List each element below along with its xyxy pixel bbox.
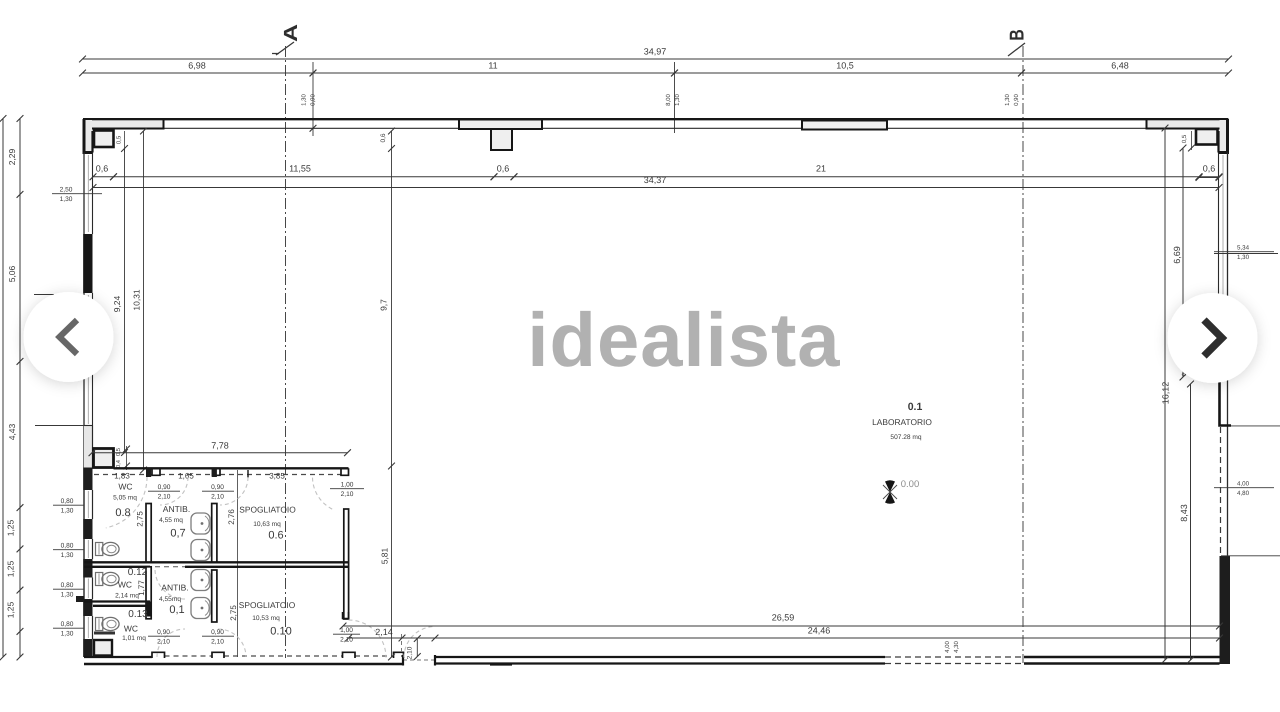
svg-text:1,00: 1,00 (341, 482, 354, 489)
svg-text:WC: WC (118, 580, 132, 590)
svg-text:1,30: 1,30 (60, 196, 73, 203)
svg-text:0,6: 0,6 (380, 133, 387, 142)
svg-text:0.6: 0.6 (268, 530, 283, 542)
svg-text:2,50: 2,50 (60, 187, 73, 194)
svg-text:0.1: 0.1 (908, 401, 923, 413)
svg-text:0.12: 0.12 (128, 567, 148, 578)
svg-text:1,01 mq: 1,01 mq (122, 635, 146, 642)
svg-text:A: A (281, 24, 302, 42)
svg-text:2,10: 2,10 (211, 493, 224, 500)
svg-text:0,4: 0,4 (115, 459, 122, 468)
svg-text:5,06: 5,06 (7, 265, 17, 282)
svg-text:6,48: 6,48 (1111, 61, 1129, 71)
svg-text:4,30: 4,30 (953, 641, 960, 653)
svg-text:2,14 mq: 2,14 mq (115, 593, 139, 600)
svg-text:1,30: 1,30 (301, 94, 308, 106)
svg-text:2,10: 2,10 (211, 638, 224, 645)
svg-text:0,90: 0,90 (158, 484, 171, 491)
svg-text:6,69: 6,69 (1172, 246, 1182, 264)
svg-text:WC: WC (118, 482, 132, 492)
svg-text:1,30: 1,30 (61, 591, 74, 598)
svg-text:2,75: 2,75 (229, 605, 238, 621)
svg-text:2,14: 2,14 (375, 627, 393, 637)
svg-text:21: 21 (816, 164, 826, 174)
svg-text:0,90: 0,90 (310, 94, 317, 106)
svg-text:26,59: 26,59 (772, 613, 795, 623)
svg-text:0,90: 0,90 (211, 629, 224, 636)
svg-text:2,75: 2,75 (136, 511, 145, 527)
svg-text:2,29: 2,29 (7, 148, 17, 165)
svg-text:507.28 mq: 507.28 mq (890, 434, 921, 441)
svg-text:4,00: 4,00 (1237, 481, 1250, 488)
svg-text:11: 11 (488, 61, 497, 71)
svg-text:0.10: 0.10 (270, 626, 291, 638)
svg-text:5,05 mq: 5,05 mq (113, 495, 137, 502)
svg-text:1,77: 1,77 (137, 580, 146, 596)
svg-text:9,7: 9,7 (379, 299, 389, 311)
svg-text:34,97: 34,97 (644, 47, 667, 57)
svg-text:2,10: 2,10 (407, 646, 414, 659)
svg-text:2,10: 2,10 (157, 638, 170, 645)
svg-text:1,30: 1,30 (61, 630, 74, 637)
svg-text:idealista: idealista (527, 298, 840, 383)
svg-text:5,34: 5,34 (1237, 245, 1250, 252)
svg-text:0,80: 0,80 (61, 621, 74, 628)
svg-text:7,78: 7,78 (211, 441, 229, 451)
svg-text:0.8: 0.8 (115, 507, 130, 519)
svg-text:0,5: 0,5 (1181, 134, 1188, 143)
svg-text:4,55 mq: 4,55 mq (159, 517, 183, 524)
svg-text:2,10: 2,10 (341, 491, 354, 498)
svg-text:ANTIB.: ANTIB. (161, 583, 188, 593)
svg-text:1,25: 1,25 (6, 519, 16, 536)
svg-text:0.00: 0.00 (901, 479, 920, 490)
svg-text:1,30: 1,30 (1237, 254, 1250, 261)
svg-text:2,76: 2,76 (227, 509, 236, 525)
svg-text:8,00: 8,00 (665, 94, 672, 106)
svg-text:0,90: 0,90 (157, 629, 170, 636)
svg-text:1,30: 1,30 (674, 94, 681, 106)
svg-text:24,46: 24,46 (808, 626, 831, 636)
svg-text:1,00: 1,00 (340, 627, 353, 634)
svg-text:11,55: 11,55 (289, 164, 311, 174)
svg-text:0,6: 0,6 (96, 164, 109, 174)
svg-text:0.13: 0.13 (128, 609, 148, 620)
svg-text:10,5: 10,5 (836, 61, 854, 71)
svg-text:0,7: 0,7 (170, 528, 185, 540)
svg-text:1,25: 1,25 (6, 560, 16, 577)
svg-text:1,65: 1,65 (178, 472, 194, 481)
svg-text:4,80: 4,80 (1237, 490, 1250, 497)
svg-text:ANTIB.: ANTIB. (163, 504, 190, 514)
svg-text:B: B (1007, 29, 1029, 41)
svg-text:4,55mq: 4,55mq (159, 596, 181, 603)
svg-text:5,81: 5,81 (380, 547, 390, 564)
svg-text:9,24: 9,24 (112, 295, 122, 312)
svg-text:0,5: 0,5 (115, 448, 122, 456)
svg-text:2,10: 2,10 (158, 493, 171, 500)
svg-text:0,90: 0,90 (211, 484, 224, 491)
svg-text:6,98: 6,98 (188, 61, 206, 71)
svg-text:10,53 mq: 10,53 mq (252, 615, 280, 622)
svg-text:SPOGLIATOIO: SPOGLIATOIO (239, 600, 296, 610)
svg-text:10,31: 10,31 (132, 289, 142, 311)
svg-text:0,6: 0,6 (497, 164, 510, 174)
svg-text:0,5: 0,5 (116, 135, 123, 144)
svg-text:0,6: 0,6 (1203, 164, 1216, 174)
svg-text:0,80: 0,80 (61, 498, 74, 505)
svg-text:10,63 mq: 10,63 mq (253, 521, 281, 528)
svg-text:LABORATORIO: LABORATORIO (872, 417, 932, 427)
svg-text:1,83: 1,83 (114, 472, 130, 481)
svg-text:3,85: 3,85 (269, 472, 285, 481)
svg-text:8,43: 8,43 (1179, 504, 1189, 522)
svg-text:16,12: 16,12 (1161, 382, 1171, 405)
svg-text:4,43: 4,43 (7, 423, 17, 440)
svg-text:4,00: 4,00 (944, 641, 951, 653)
svg-text:1,30: 1,30 (1004, 94, 1011, 106)
svg-text:0,1: 0,1 (169, 604, 184, 616)
svg-text:WC: WC (124, 624, 138, 634)
svg-text:34,37: 34,37 (644, 175, 667, 185)
svg-text:1,25: 1,25 (6, 601, 16, 618)
svg-text:1,30: 1,30 (61, 552, 74, 559)
svg-text:1,30: 1,30 (61, 507, 74, 514)
svg-text:0,90: 0,90 (1013, 94, 1020, 106)
svg-text:0,80: 0,80 (61, 582, 74, 589)
svg-text:0,80: 0,80 (61, 543, 74, 550)
svg-text:SPOGLIATOIO: SPOGLIATOIO (239, 505, 296, 515)
